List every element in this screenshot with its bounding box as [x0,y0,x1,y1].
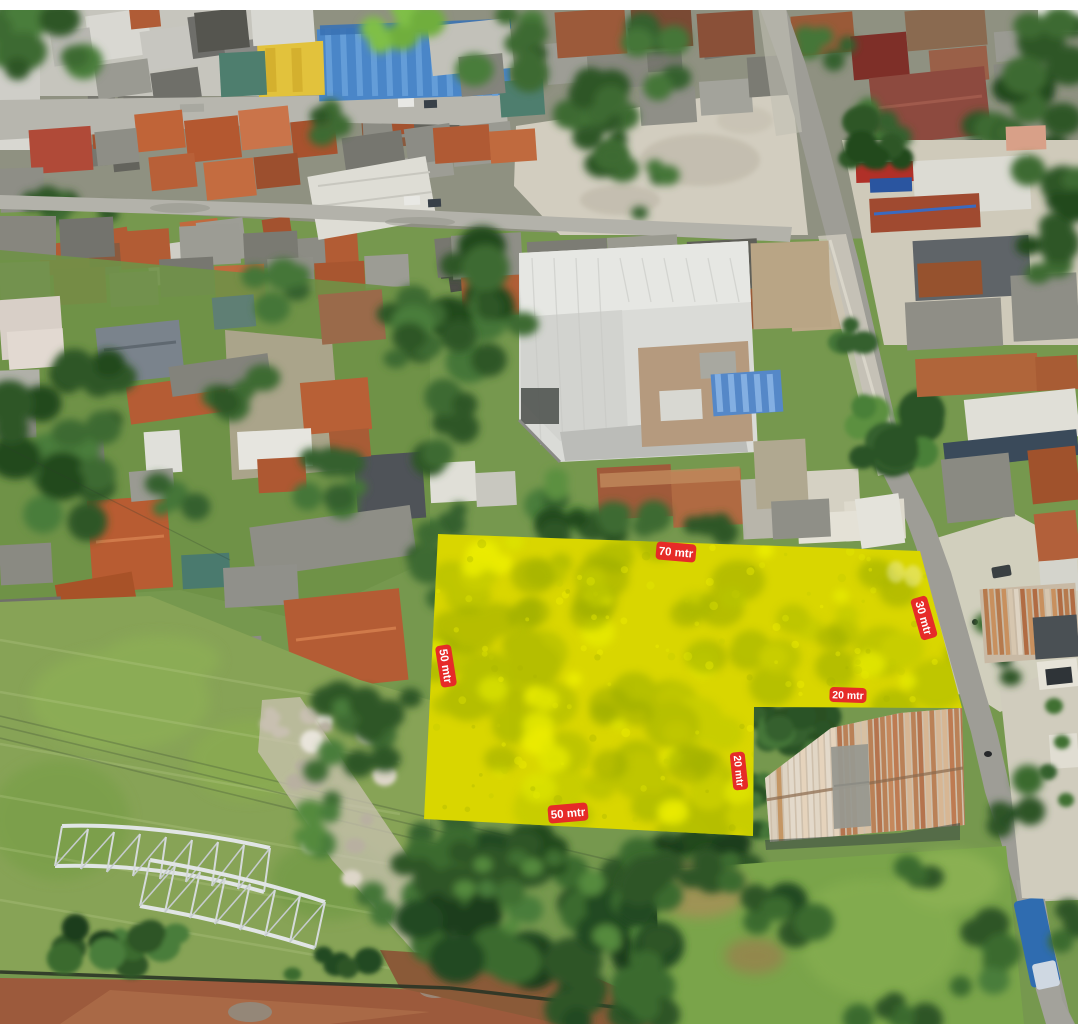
svg-text:20 mtr: 20 mtr [832,689,864,702]
